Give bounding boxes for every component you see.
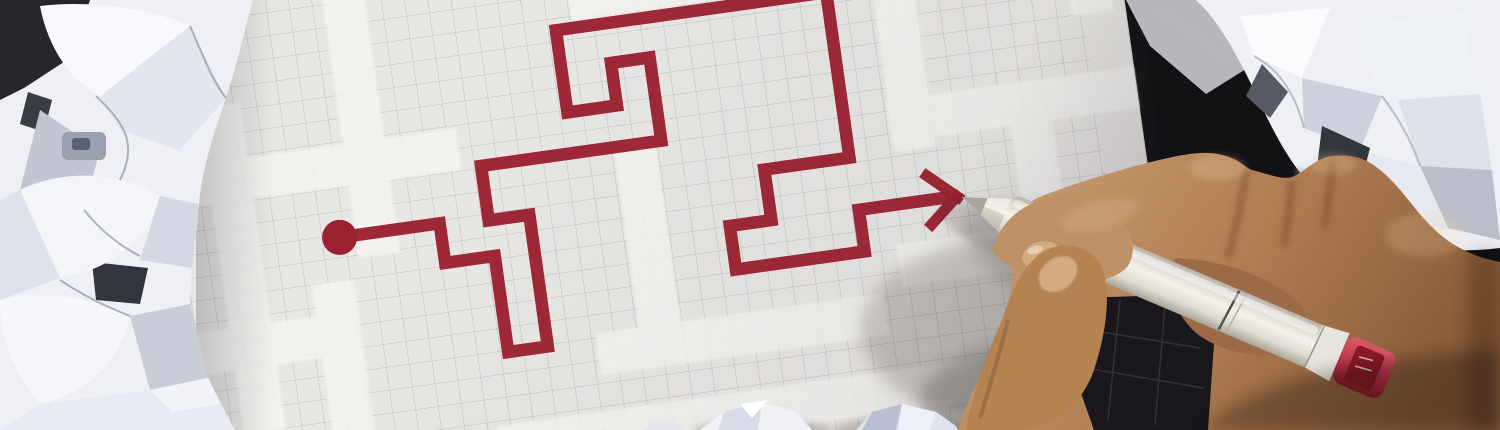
highlight-blob [1308, 153, 1356, 175]
highlight-blob [1385, 213, 1465, 257]
edge-shadow-overlay [1468, 250, 1500, 430]
printed-scrap [62, 132, 106, 160]
highlight-blob [1190, 155, 1246, 181]
photo-maze-scene [0, 0, 1500, 430]
printed-scrap-mark [72, 138, 90, 150]
scene-canvas [0, 0, 1500, 430]
crumple-dark-gap [92, 262, 148, 304]
